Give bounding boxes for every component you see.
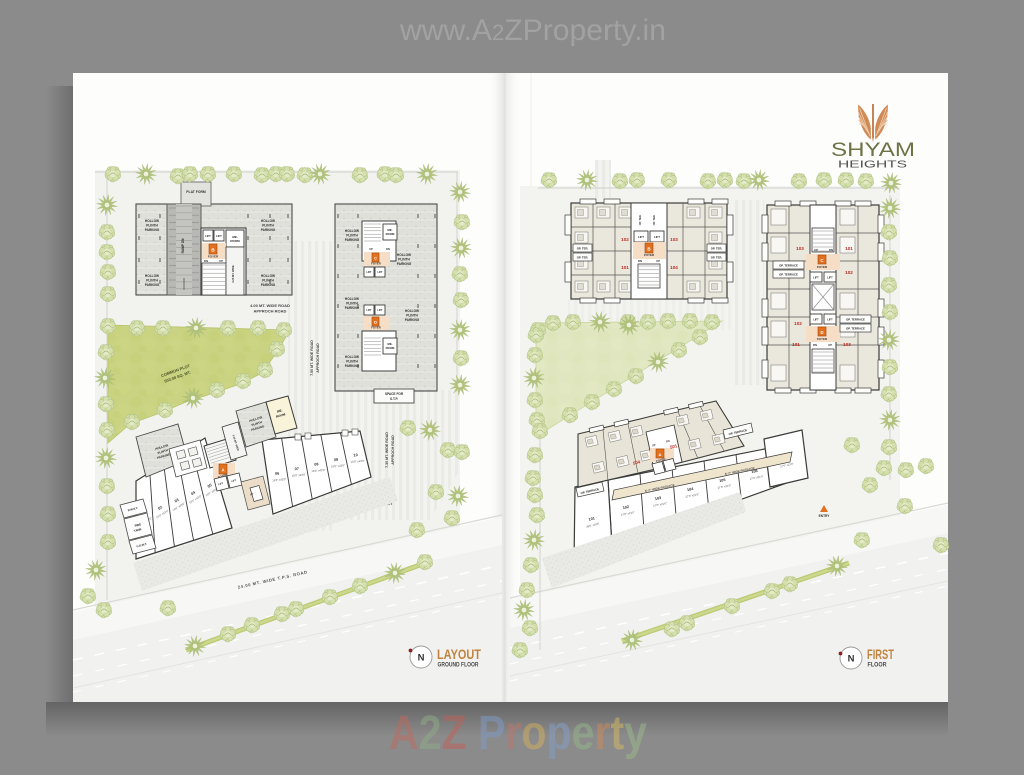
svg-text:PLINTH: PLINTH xyxy=(262,224,274,228)
svg-text:LIFT: LIFT xyxy=(827,276,833,280)
svg-text:FOYER: FOYER xyxy=(208,255,219,259)
svg-text:HOLLOW: HOLLOW xyxy=(345,229,359,233)
svg-text:ROOM: ROOM xyxy=(386,346,395,350)
svg-text:OP. TER.: OP. TER. xyxy=(711,247,723,251)
svg-text:OP. TER.: OP. TER. xyxy=(577,256,589,260)
svg-text:C: C xyxy=(820,258,823,263)
svg-text:SPACE FOR: SPACE FOR xyxy=(385,392,404,396)
svg-text:SHYAM: SHYAM xyxy=(831,140,915,161)
svg-text:PLINTH: PLINTH xyxy=(346,234,358,238)
svg-text:08: 08 xyxy=(314,462,319,466)
svg-text:A: A xyxy=(221,468,224,473)
svg-text:PLINTH: PLINTH xyxy=(262,279,274,283)
svg-text:C: C xyxy=(374,256,377,261)
svg-text:ENTRY: ENTRY xyxy=(819,514,831,518)
svg-text:HOLLOW: HOLLOW xyxy=(145,274,159,278)
svg-text:7.50 MT. WIDE ROAD: 7.50 MT. WIDE ROAD xyxy=(310,340,314,376)
svg-text:HOLLOW: HOLLOW xyxy=(345,297,359,301)
svg-text:LIFT: LIFT xyxy=(638,235,644,239)
svg-text:101: 101 xyxy=(845,246,853,251)
svg-text:GROUND FLOOR: GROUND FLOOR xyxy=(438,663,480,669)
svg-text:HOLLOW: HOLLOW xyxy=(261,219,275,223)
svg-text:LIFT: LIFT xyxy=(366,309,372,312)
svg-text:UP: UP xyxy=(814,248,818,252)
svg-text:FOYER: FOYER xyxy=(371,262,381,266)
svg-text:PLINTH: PLINTH xyxy=(398,258,410,262)
svg-text:HOLLOW: HOLLOW xyxy=(405,309,419,313)
svg-text:FOYER: FOYER xyxy=(371,326,381,330)
svg-text:103: 103 xyxy=(670,237,678,242)
svg-text:FOYER: FOYER xyxy=(644,253,655,257)
svg-text:OP. TER.: OP. TER. xyxy=(638,214,642,225)
svg-text:3.25 MT. WIDE: 3.25 MT. WIDE xyxy=(231,265,235,283)
svg-text:OP. TERRACE: OP. TERRACE xyxy=(846,327,865,331)
svg-text:103: 103 xyxy=(796,246,804,251)
svg-text:ROOM: ROOM xyxy=(230,239,240,243)
svg-text:DN: DN xyxy=(204,259,208,263)
svg-text:DN: DN xyxy=(638,259,642,263)
svg-text:PARKING: PARKING xyxy=(145,228,160,232)
svg-text:DN: DN xyxy=(829,248,833,252)
svg-text:PARKING: PARKING xyxy=(345,238,360,242)
svg-text:LIFT: LIFT xyxy=(366,271,372,274)
svg-text:HOLLOW: HOLLOW xyxy=(261,274,275,278)
svg-text:PARKING: PARKING xyxy=(397,262,412,266)
svg-text:UP: UP xyxy=(369,247,373,251)
svg-text:PARKING: PARKING xyxy=(145,283,160,287)
svg-text:LIFT: LIFT xyxy=(813,276,819,280)
svg-text:07: 07 xyxy=(295,467,300,471)
svg-text:LAYOUT: LAYOUT xyxy=(437,646,481,662)
svg-text:www.A2ZProperty.in: www.A2ZProperty.in xyxy=(399,14,666,47)
svg-text:UP: UP xyxy=(656,259,660,263)
svg-text:10: 10 xyxy=(353,453,358,457)
svg-text:D: D xyxy=(374,320,377,325)
svg-text:APPROCH ROAD: APPROCH ROAD xyxy=(254,309,287,314)
svg-text:UP: UP xyxy=(219,259,223,263)
svg-text:4.00 MT. WIDE ROAD: 4.00 MT. WIDE ROAD xyxy=(250,303,290,308)
svg-text:PLINTH: PLINTH xyxy=(146,224,158,228)
svg-text:101: 101 xyxy=(792,342,800,347)
svg-text:LIFT: LIFT xyxy=(377,309,383,312)
svg-text:103: 103 xyxy=(843,342,851,347)
svg-text:OP. TERRACE: OP. TERRACE xyxy=(779,264,798,268)
svg-text:HOLLOW: HOLLOW xyxy=(397,253,411,257)
svg-text:OP. TER.: OP. TER. xyxy=(711,256,723,260)
svg-text:A: A xyxy=(659,452,662,457)
svg-text:OP. TER.: OP. TER. xyxy=(577,247,589,251)
svg-text:N: N xyxy=(848,654,855,665)
svg-text:101: 101 xyxy=(621,265,629,270)
svg-text:DN: DN xyxy=(386,247,390,251)
svg-text:RAMP DN: RAMP DN xyxy=(181,238,185,254)
svg-text:OP. TERRACE: OP. TERRACE xyxy=(846,318,865,322)
svg-text:7.30 MT. WIDE ROAD: 7.30 MT. WIDE ROAD xyxy=(385,432,389,468)
svg-text:09: 09 xyxy=(334,458,339,462)
svg-text:OP. TERRACE: OP. TERRACE xyxy=(779,273,798,277)
svg-text:FLOOR: FLOOR xyxy=(868,663,888,669)
svg-text:PARKING: PARKING xyxy=(261,283,276,287)
svg-text:PARKING: PARKING xyxy=(405,318,420,322)
svg-text:APPROCH ROAD: APPROCH ROAD xyxy=(316,343,320,373)
svg-text:HEIGHTS: HEIGHTS xyxy=(838,160,908,171)
svg-text:102: 102 xyxy=(794,321,802,326)
svg-text:PLINTH: PLINTH xyxy=(346,302,358,306)
svg-text:LIFT: LIFT xyxy=(827,318,833,322)
svg-text:A2Z Property: A2Z Property xyxy=(389,707,647,760)
svg-text:HOLLOW: HOLLOW xyxy=(145,219,159,223)
svg-text:PLINTH: PLINTH xyxy=(146,279,158,283)
svg-text:DN: DN xyxy=(813,343,817,347)
svg-text:LIFT: LIFT xyxy=(216,234,222,238)
svg-text:D: D xyxy=(820,330,823,335)
svg-text:PARKING: PARKING xyxy=(261,228,276,232)
svg-text:LIFT: LIFT xyxy=(813,318,819,322)
svg-text:HOLLOW: HOLLOW xyxy=(345,355,359,359)
svg-text:LIFT: LIFT xyxy=(377,271,383,274)
svg-text:UP: UP xyxy=(828,343,832,347)
svg-text:FIRST: FIRST xyxy=(867,646,894,662)
svg-text:06: 06 xyxy=(275,472,280,476)
svg-text:104: 104 xyxy=(670,265,678,270)
svg-text:LIFT: LIFT xyxy=(654,235,660,239)
svg-text:LIFT: LIFT xyxy=(205,234,211,238)
svg-text:102: 102 xyxy=(621,237,629,242)
svg-text:S.T.P.: S.T.P. xyxy=(390,397,398,401)
svg-text:PLAT FORM: PLAT FORM xyxy=(186,190,206,194)
svg-text:APPROCH ROAD: APPROCH ROAD xyxy=(391,435,395,465)
svg-text:N: N xyxy=(418,653,425,664)
svg-text:102: 102 xyxy=(845,270,853,275)
svg-text:FOYER: FOYER xyxy=(817,337,828,341)
svg-text:PLINTH: PLINTH xyxy=(406,314,418,318)
svg-text:OP. TER.: OP. TER. xyxy=(652,214,656,225)
svg-text:ROOM: ROOM xyxy=(386,232,395,236)
svg-text:FOYER: FOYER xyxy=(817,265,828,269)
svg-text:PLINTH: PLINTH xyxy=(346,360,358,364)
